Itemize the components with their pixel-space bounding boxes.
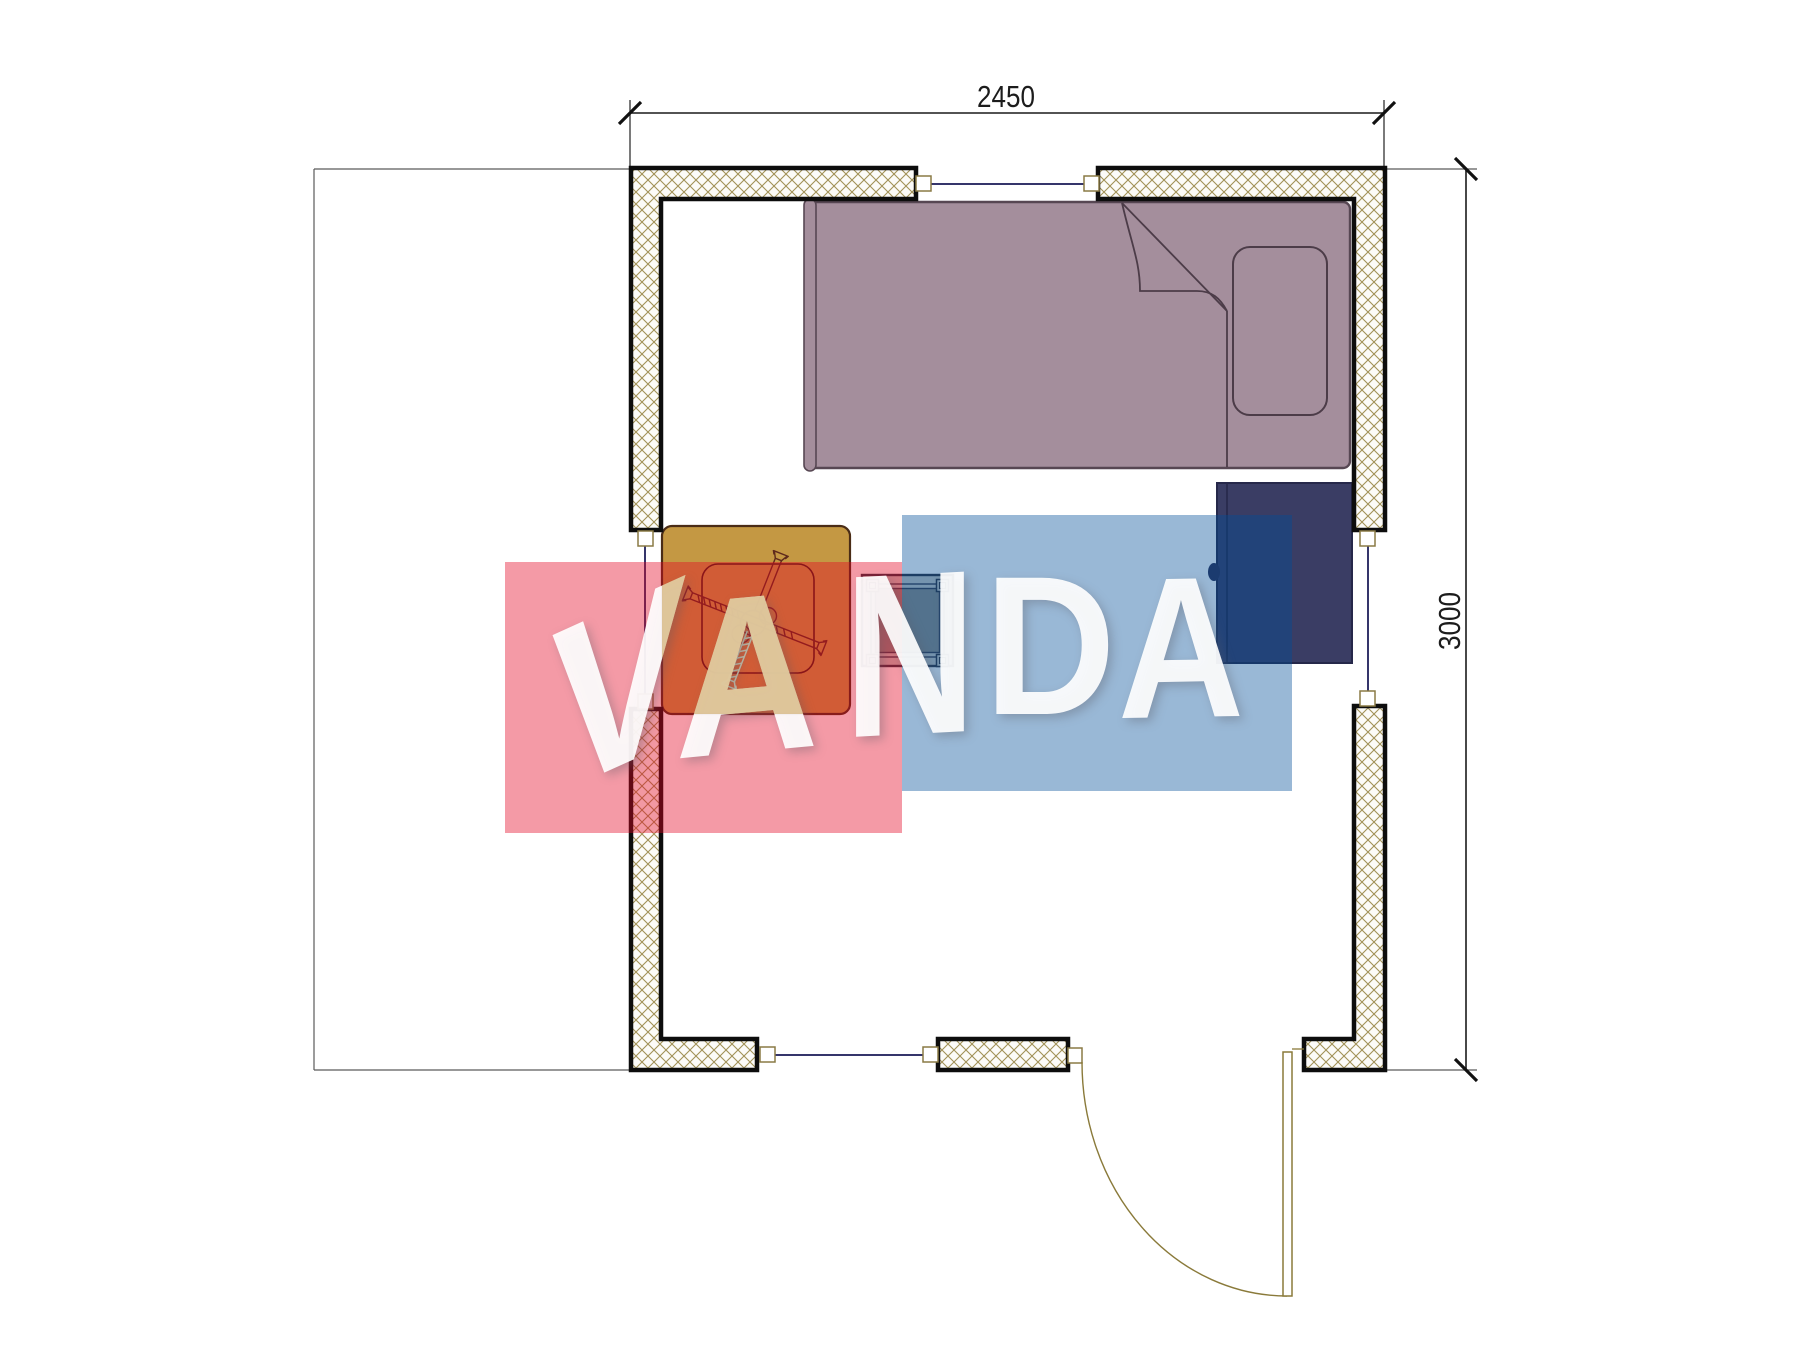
svg-text:D: D <box>984 536 1116 757</box>
svg-text:2450: 2450 <box>977 80 1035 115</box>
svg-text:N: N <box>844 522 976 787</box>
svg-text:3000: 3000 <box>1433 592 1468 650</box>
svg-text:A: A <box>1118 533 1244 760</box>
